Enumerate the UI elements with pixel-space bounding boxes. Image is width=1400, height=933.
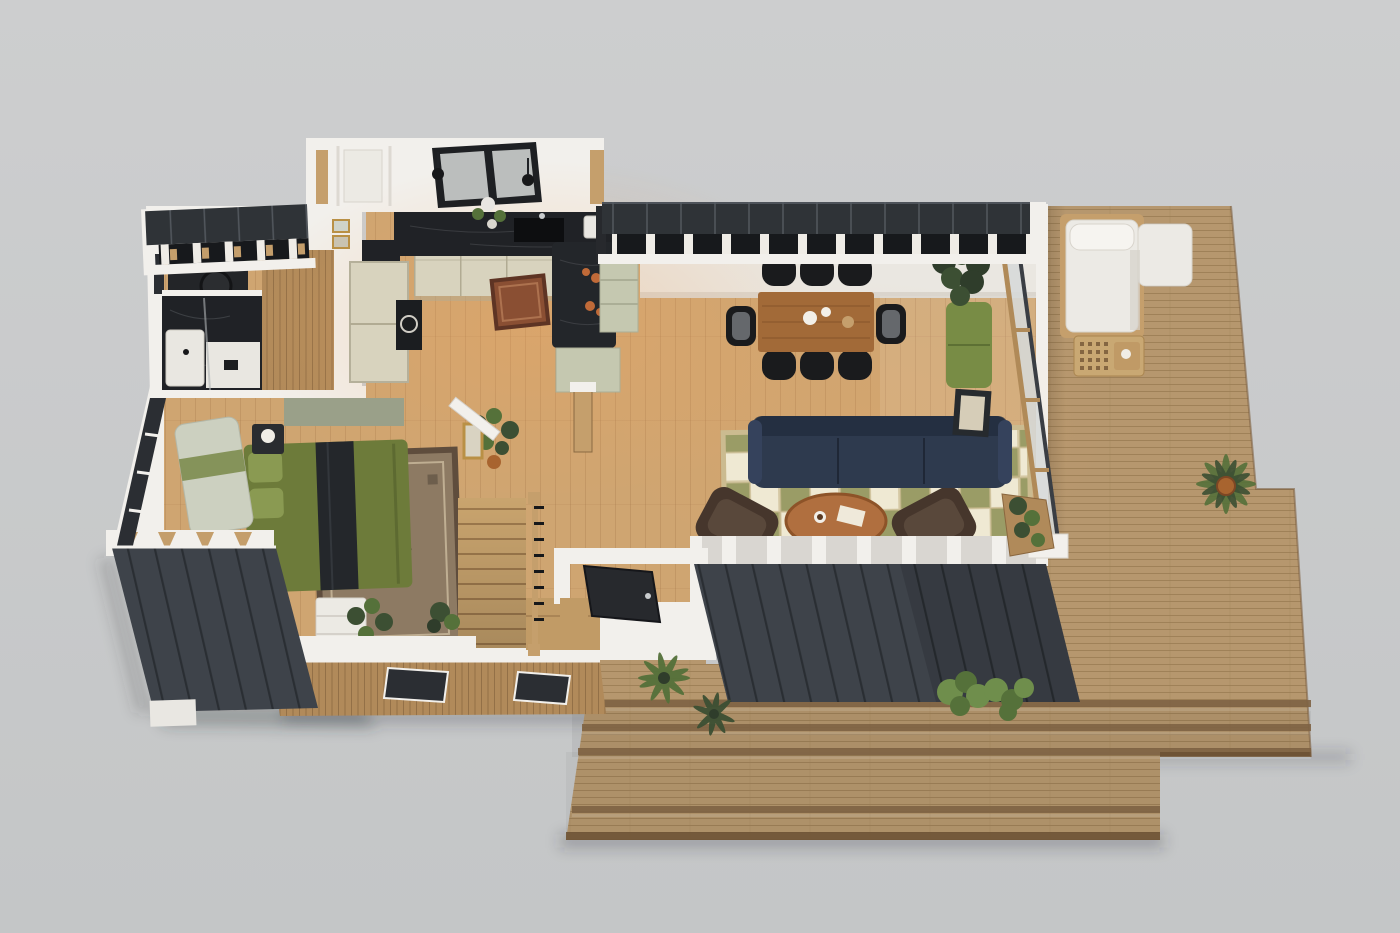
sage-tall-cabinet bbox=[600, 256, 638, 332]
monstera-pot bbox=[487, 455, 501, 469]
newel-bottom bbox=[528, 644, 540, 656]
door-header bbox=[556, 548, 706, 564]
living-bottom-wall bbox=[690, 536, 1048, 566]
vanity-faucet bbox=[183, 349, 189, 355]
palm-pot bbox=[1217, 477, 1235, 495]
chair-pad-right bbox=[882, 310, 900, 338]
mullion-a bbox=[145, 434, 160, 436]
vanity bbox=[166, 330, 204, 386]
post-cap bbox=[570, 382, 596, 392]
bathroom bbox=[162, 296, 262, 390]
newel-top bbox=[528, 492, 540, 504]
wood-wall-edge-left bbox=[316, 150, 328, 204]
faucet bbox=[539, 213, 545, 219]
roof-entry bbox=[141, 202, 316, 275]
kitchen-window-pane-1 bbox=[440, 151, 489, 201]
porch-window-2 bbox=[514, 672, 570, 704]
chair-pad-left bbox=[732, 312, 750, 340]
runner-rug bbox=[492, 275, 549, 328]
step-face-2 bbox=[582, 724, 1311, 731]
render-canvas bbox=[0, 0, 1400, 933]
foundation-block bbox=[150, 699, 197, 727]
daybed-seam bbox=[1130, 250, 1140, 330]
floor-plan-render bbox=[0, 0, 1400, 933]
main-roof-metal bbox=[602, 202, 1034, 234]
shower-drain bbox=[224, 360, 238, 370]
roof-corner-trim bbox=[1030, 202, 1046, 264]
porch-wall bbox=[272, 661, 606, 716]
main-fascia bbox=[598, 254, 1044, 264]
deck-palm-plant bbox=[1196, 454, 1256, 514]
laundry-door bbox=[344, 150, 382, 202]
range-oven bbox=[396, 300, 422, 350]
main-rafters bbox=[612, 234, 1034, 254]
table-lamp bbox=[261, 429, 275, 443]
dining-chairs-bottom bbox=[762, 350, 872, 380]
deck-terrace-tint-2 bbox=[566, 752, 1160, 840]
step-face-4 bbox=[572, 806, 1160, 813]
mullion-c bbox=[129, 510, 144, 512]
bowl bbox=[842, 316, 854, 328]
framed-art-2 bbox=[333, 236, 349, 248]
daybed-bolster bbox=[1070, 224, 1134, 250]
table-box-item bbox=[1121, 349, 1131, 359]
mullion-b bbox=[137, 472, 152, 474]
wall-art bbox=[284, 398, 404, 426]
porch-window-1 bbox=[384, 668, 448, 702]
stair-depth-shade bbox=[458, 498, 526, 648]
leaning-mirror bbox=[952, 389, 991, 437]
wood-wall-edge-right bbox=[590, 150, 604, 204]
framed-art-1 bbox=[333, 220, 349, 232]
door-threshold bbox=[560, 598, 588, 648]
plate-2 bbox=[821, 307, 831, 317]
wood-post bbox=[574, 388, 592, 452]
step-edge-bottom bbox=[566, 832, 1160, 840]
entry-roof-metal bbox=[145, 204, 308, 245]
sink bbox=[514, 218, 564, 242]
plate-1 bbox=[803, 311, 817, 325]
daybed-chaise bbox=[1138, 224, 1192, 286]
door-handle bbox=[645, 593, 651, 599]
planter-box bbox=[1002, 494, 1054, 556]
